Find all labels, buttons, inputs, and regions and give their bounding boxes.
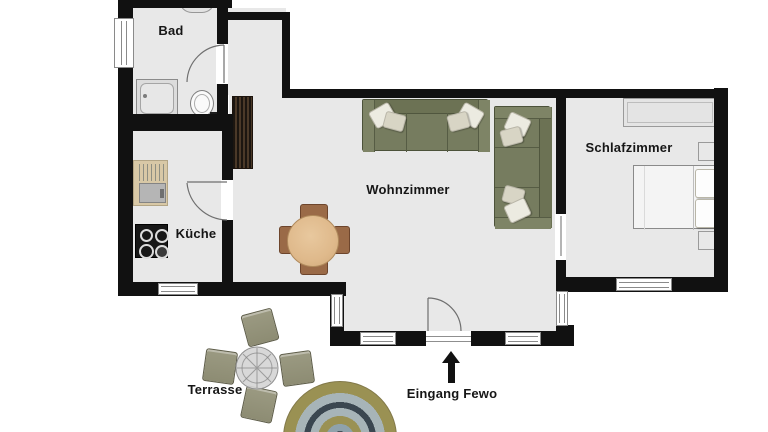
sofa-horizontal <box>362 99 488 151</box>
floor-plan: Bad Küche Wohnzimmer Schlafzimmer Terras… <box>0 0 768 432</box>
sideboard-cabinet <box>232 96 253 169</box>
doorway-kitchen <box>221 180 233 220</box>
window-living-east <box>556 291 568 326</box>
doorway-bathroom <box>216 44 228 84</box>
wall-extension-east-pier <box>556 325 574 346</box>
wall-hallway-north <box>217 12 290 20</box>
terrace-chair <box>240 307 279 347</box>
shower <box>136 79 178 118</box>
terrace-chair <box>279 350 315 387</box>
bedroom-label: Schlafzimmer <box>569 140 689 155</box>
window-bedroom-south <box>616 278 672 291</box>
window-living-west <box>331 294 343 327</box>
wall-divider-upper <box>556 96 566 214</box>
wall-kitchen-south <box>118 282 346 296</box>
hallway-floor <box>222 8 286 95</box>
window-living-south-1 <box>360 332 396 345</box>
window-bathroom-west <box>114 18 134 68</box>
kitchen-label: Küche <box>161 226 231 241</box>
wall-north <box>282 89 728 98</box>
wall-divider-lower <box>556 258 566 278</box>
double-bed <box>633 165 719 229</box>
shower-drain <box>143 94 147 98</box>
burner <box>140 229 153 242</box>
dining-table <box>287 215 339 267</box>
wall-bathroom-north <box>118 0 232 8</box>
living-room-floor-extension <box>330 290 558 336</box>
terrace-label: Terrasse <box>155 382 275 397</box>
wardrobe <box>623 98 717 127</box>
kitchen-sink <box>139 183 166 203</box>
window-living-south-2 <box>505 332 541 345</box>
doorway-bedroom <box>555 214 566 260</box>
parasol <box>283 381 397 432</box>
living-room-label: Wohnzimmer <box>348 182 468 197</box>
window-kitchen-south <box>158 283 198 295</box>
sofa-vertical <box>494 106 550 227</box>
dish-rack <box>139 164 164 181</box>
entrance-arrow-shaft <box>448 362 455 383</box>
faucet <box>160 189 164 198</box>
burner <box>139 244 154 259</box>
sofa-pillow <box>499 126 524 148</box>
wall-east <box>714 88 728 292</box>
entrance-label: Eingang Fewo <box>392 386 512 401</box>
sofa-pillow <box>446 111 471 133</box>
wall-bathroom-south <box>118 114 228 131</box>
entrance-doorway <box>426 331 471 346</box>
wall-hallway-east <box>282 12 290 94</box>
bathroom-label: Bad <box>141 23 201 38</box>
burner <box>155 245 169 259</box>
terrace-chair <box>202 348 238 385</box>
